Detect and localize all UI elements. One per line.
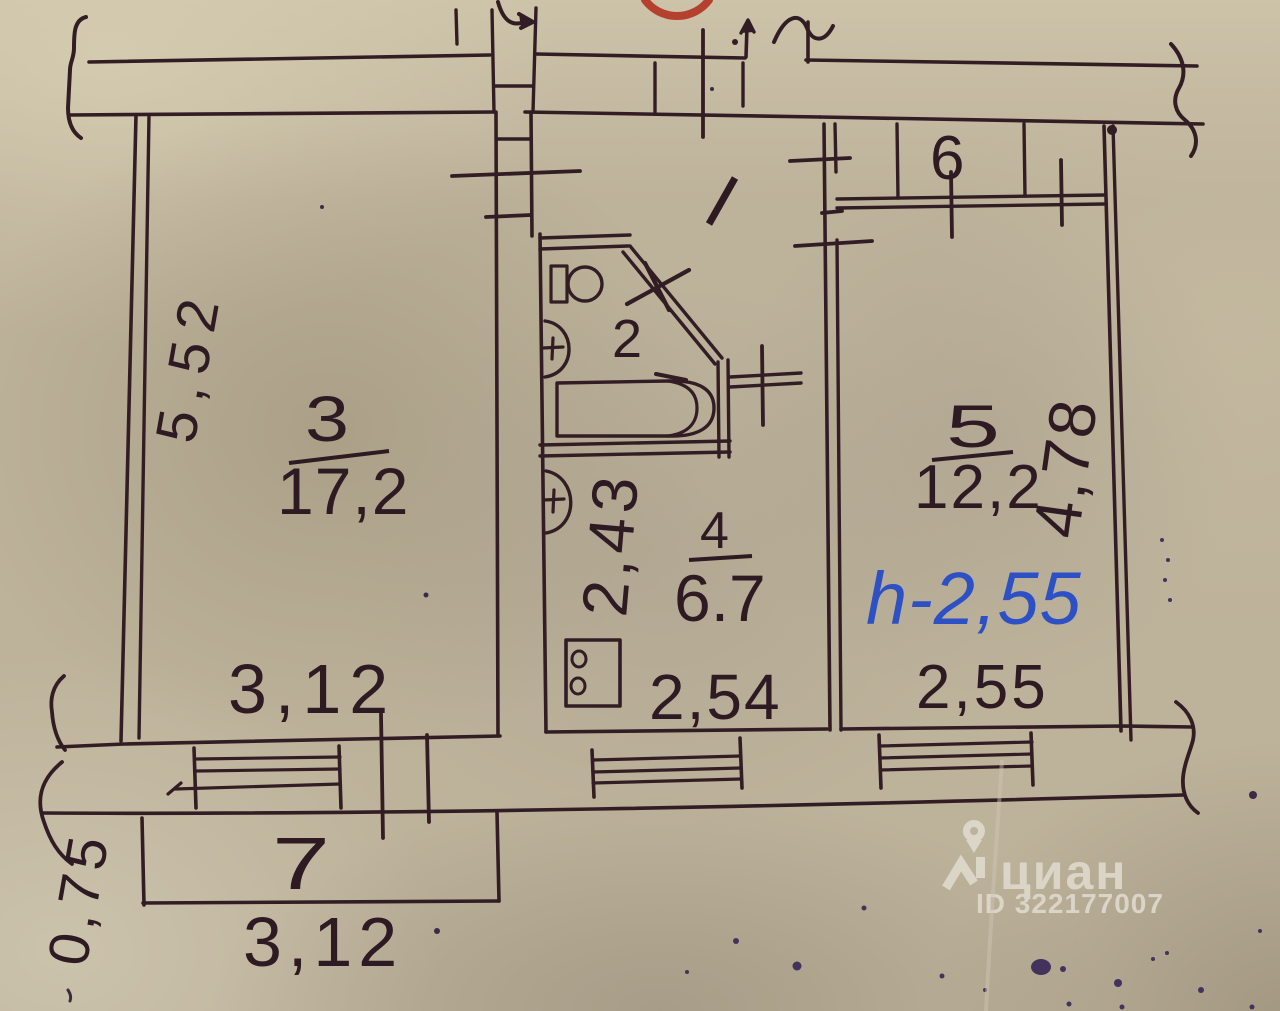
svg-text:2,54: 2,54 bbox=[649, 661, 782, 733]
svg-text:2,43: 2,43 bbox=[568, 469, 652, 619]
svg-text:6: 6 bbox=[930, 124, 964, 193]
svg-text:5: 5 bbox=[946, 393, 1000, 460]
svg-text:7: 7 bbox=[272, 822, 330, 905]
svg-text:2: 2 bbox=[612, 309, 642, 369]
svg-text:4: 4 bbox=[700, 502, 729, 560]
svg-text:h-2,55: h-2,55 bbox=[866, 557, 1082, 640]
svg-text:2,55: 2,55 bbox=[916, 653, 1049, 722]
svg-text:6.7: 6.7 bbox=[674, 561, 766, 635]
svg-text:17,2: 17,2 bbox=[277, 454, 409, 528]
svg-text:3,12: 3,12 bbox=[243, 903, 403, 981]
svg-text:ID 322177007: ID 322177007 bbox=[976, 888, 1164, 919]
svg-text:3,12: 3,12 bbox=[228, 650, 396, 728]
svg-text:3: 3 bbox=[305, 383, 349, 455]
